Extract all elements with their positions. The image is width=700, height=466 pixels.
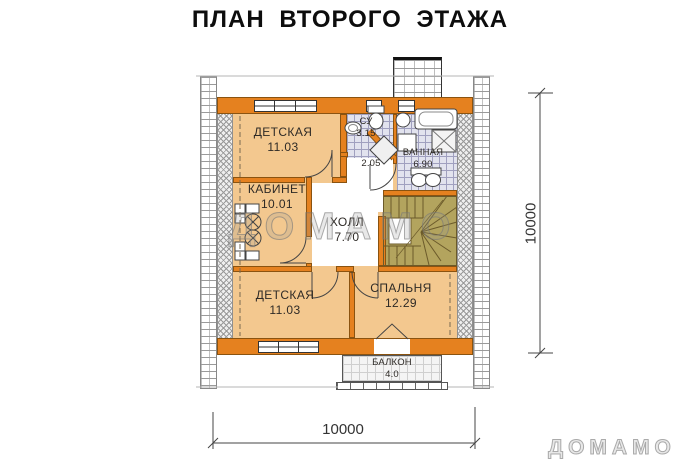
partition-mid-c — [378, 266, 457, 272]
wall-su-stub — [340, 152, 348, 157]
page-title: ПЛАН ВТОРОГО ЭТАЖА — [190, 6, 510, 34]
room-label-vannaya: ВАННАЯ 6.90 — [403, 147, 443, 171]
room-area: 11.03 — [254, 140, 313, 155]
wall-su-vannaya — [393, 114, 397, 164]
room-area: 11.03 — [256, 303, 315, 318]
room-area: 4.0 — [372, 369, 412, 381]
wall-bottom — [217, 338, 473, 355]
room-name: СУ — [356, 116, 375, 128]
room-name: ВАННАЯ — [403, 147, 443, 159]
watermark-center: ДОМАМО — [229, 206, 460, 249]
room-label-detskaya-top: ДЕТСКАЯ 11.03 — [254, 125, 313, 155]
room-name: ДЕТСКАЯ — [256, 288, 315, 303]
wall-su-left — [340, 114, 347, 177]
room-label-su: СУ 3.15 — [356, 116, 375, 140]
left-gable-wall — [200, 76, 217, 389]
room-label-corridor: 2.05 — [361, 158, 380, 170]
chimney — [393, 57, 442, 100]
partition-detskaya-spalnya — [349, 272, 355, 338]
partition-detskaya-top-b — [332, 177, 347, 183]
room-area: 12.29 — [370, 296, 431, 311]
room-label-balkon: БАЛКОН 4.0 — [372, 357, 412, 381]
room-area: 6.90 — [403, 159, 443, 171]
right-gable-wall — [473, 76, 490, 389]
partition-mid-a — [233, 266, 312, 272]
floor-plan-canvas: ПЛАН ВТОРОГО ЭТАЖА — [0, 0, 700, 466]
dimension-bottom-label: 10000 — [313, 421, 373, 438]
room-label-spalnya: СПАЛЬНЯ 12.29 — [370, 281, 431, 311]
room-area: 2.05 — [361, 158, 380, 170]
room-area: 3.15 — [356, 128, 375, 140]
room-name: СПАЛЬНЯ — [370, 281, 431, 296]
wall-top — [217, 97, 473, 114]
room-label-detskaya-bottom: ДЕТСКАЯ 11.03 — [256, 288, 315, 318]
dimension-right-label: 10000 — [523, 194, 540, 254]
balcony-railing — [336, 382, 448, 390]
wall-vannaya-bottom — [383, 190, 457, 196]
watermark-corner: ДОМАМО — [548, 436, 676, 460]
room-name: КАБИНЕТ — [248, 182, 306, 197]
room-name: ДЕТСКАЯ — [254, 125, 313, 140]
room-name: БАЛКОН — [372, 357, 412, 369]
